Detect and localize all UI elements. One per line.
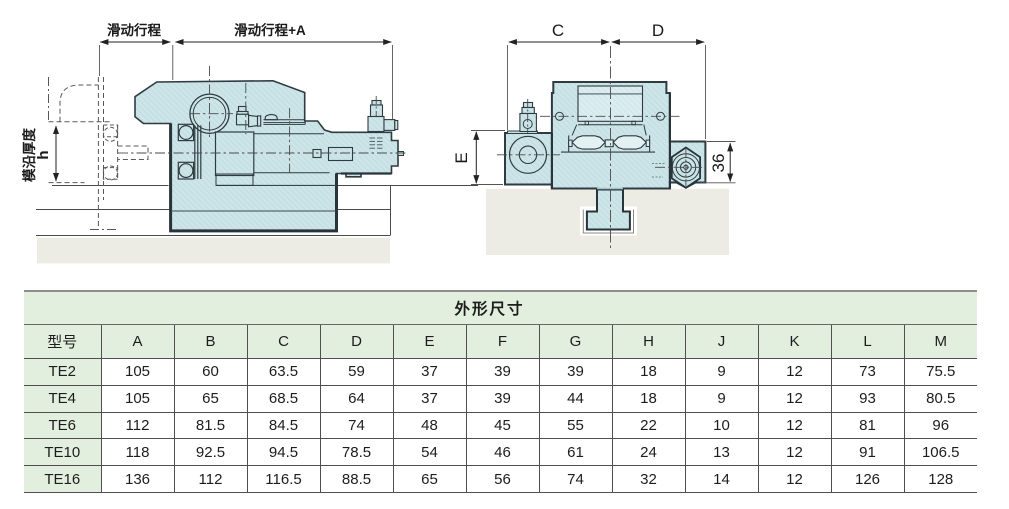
svg-text:滑动行程: 滑动行程 (107, 22, 161, 38)
svg-text:滑动行程+A: 滑动行程+A (234, 22, 306, 38)
svg-text:h: h (35, 150, 52, 159)
svg-text:C: C (552, 21, 564, 40)
svg-text:D: D (652, 21, 664, 40)
svg-text:36: 36 (709, 154, 728, 173)
svg-text:E: E (452, 152, 471, 163)
